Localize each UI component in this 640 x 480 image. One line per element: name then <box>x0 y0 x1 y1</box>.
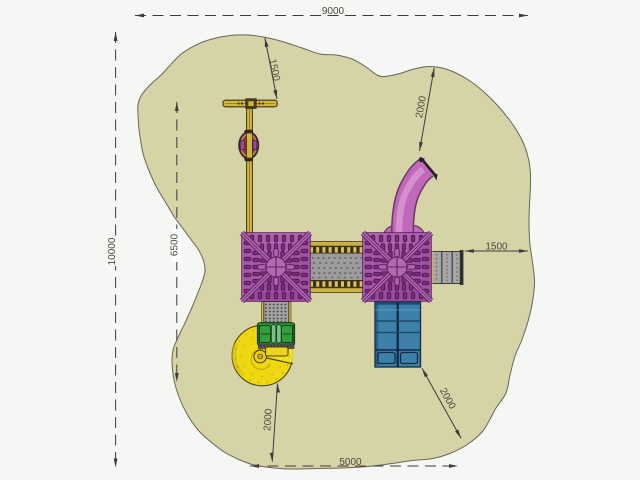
svg-text:2000: 2000 <box>262 408 274 431</box>
svg-text:5000: 5000 <box>339 457 362 468</box>
svg-text:10000: 10000 <box>107 237 118 265</box>
svg-text:9000: 9000 <box>322 6 345 17</box>
svg-text:1500: 1500 <box>485 242 508 253</box>
svg-text:6500: 6500 <box>169 233 180 256</box>
